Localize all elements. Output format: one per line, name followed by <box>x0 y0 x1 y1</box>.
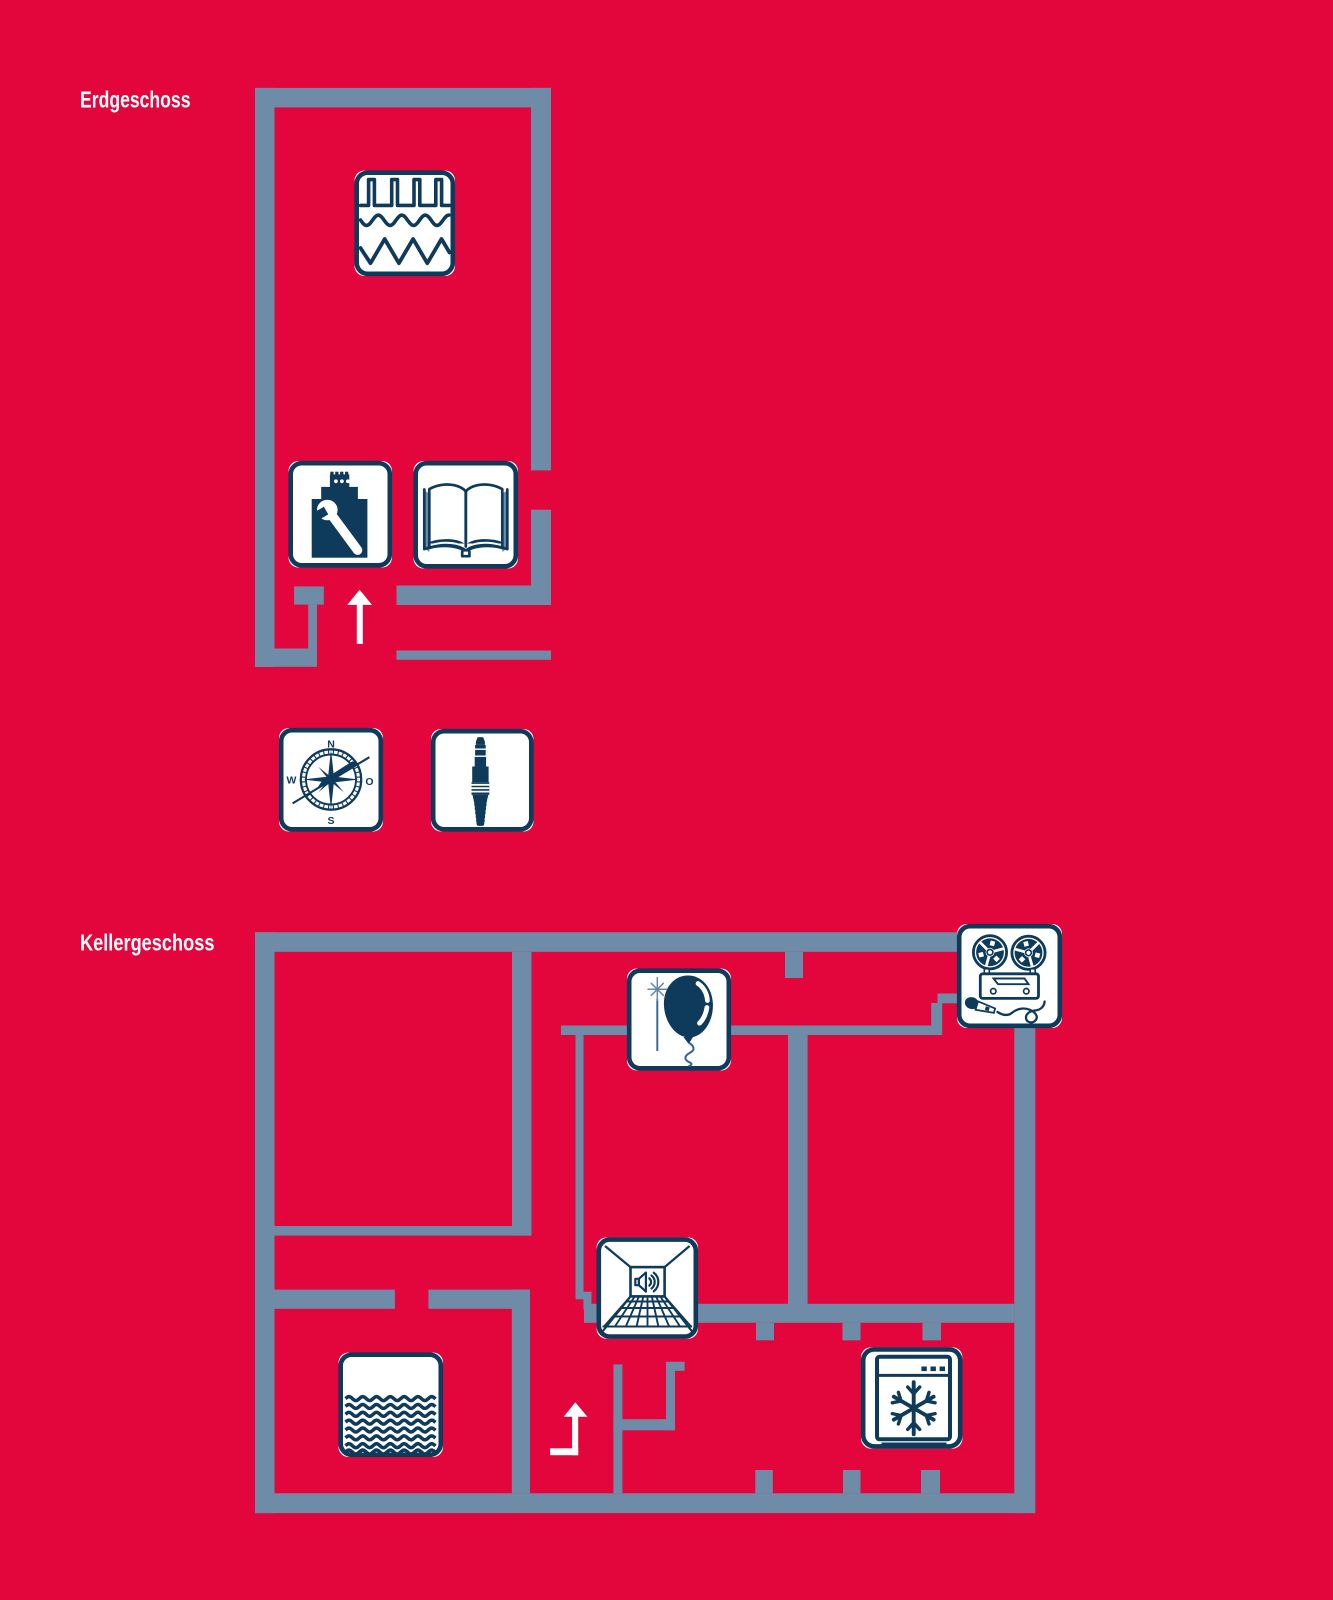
svg-text:Kellergeschoss: Kellergeschoss <box>80 930 215 956</box>
svg-text:Erdgeschoss: Erdgeschoss <box>80 87 191 113</box>
svg-text:N: N <box>327 739 335 751</box>
svg-text:O: O <box>365 776 373 788</box>
svg-text:W: W <box>287 775 297 787</box>
svg-text:S: S <box>327 815 334 827</box>
